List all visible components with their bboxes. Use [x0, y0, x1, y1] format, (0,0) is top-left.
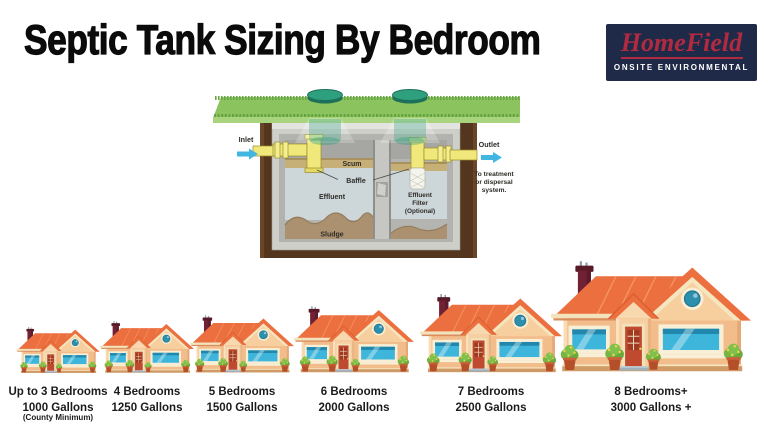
bedrooms-text: 8 Bedrooms+ [611, 386, 692, 398]
house-illustration [190, 315, 294, 374]
bedrooms-text: 4 Bedrooms [112, 386, 183, 398]
bedrooms-text: 5 Bedrooms [207, 386, 278, 398]
divider-wall [373, 140, 391, 239]
infographic-canvas: Septic Tank Sizing By Bedroom HomeField … [0, 0, 768, 432]
inlet-label: Inlet [239, 135, 254, 144]
house-label: 8 Bedrooms+ 3000 Gallons + [611, 386, 692, 414]
outlet-label: Outlet [479, 140, 500, 149]
logo-underline-rule [621, 57, 743, 59]
outlet-arrow-icon [481, 152, 502, 163]
house-illustration [16, 327, 100, 374]
gallons-text: 3000 Gallons + [611, 402, 692, 414]
house-illustration [551, 261, 751, 374]
effluent-filter [410, 168, 425, 189]
house-label: 5 Bedrooms 1500 Gallons [207, 386, 278, 414]
homefield-logo: HomeField ONSITE ENVIRONMENTAL [606, 24, 757, 81]
page-title: Septic Tank Sizing By Bedroom [24, 16, 540, 64]
logo-tagline: ONSITE ENVIRONMENTAL [606, 63, 757, 72]
gallons-text: 1250 Gallons [112, 402, 183, 414]
effluent-label: Effluent [319, 194, 346, 201]
sludge-label: Sludge [320, 232, 343, 239]
baffle-label: Baffle [346, 178, 366, 185]
house-5-bedrooms: 5 Bedrooms 1500 Gallons [190, 315, 294, 374]
bedrooms-text: 6 Bedrooms [319, 386, 390, 398]
house-label: Up to 3 Bedrooms 1000 Gallons (County Mi… [8, 386, 107, 422]
house-6-bedrooms: 6 Bedrooms 2000 Gallons [294, 306, 414, 374]
gallons-text: 2500 Gallons [456, 402, 527, 414]
house-label: 4 Bedrooms 1250 Gallons [112, 386, 183, 414]
house-illustration [294, 306, 414, 374]
county-minimum-note: (County Minimum) [8, 414, 107, 422]
house-4-bedrooms: 4 Bedrooms 1250 Gallons [100, 321, 194, 374]
outlet-note-line3: system. [482, 187, 507, 194]
bedrooms-text: 7 Bedrooms [456, 386, 527, 398]
scum-label: Scum [342, 161, 361, 168]
gallons-text: 2000 Gallons [319, 402, 390, 414]
logo-wordmark: HomeField [606, 28, 757, 57]
septic-tank-diagram: Inlet Outlet To treatment or dispersal s… [205, 85, 565, 265]
outlet-note-line2: or dispersal [475, 179, 513, 186]
filter-label-line2: Filter [412, 200, 428, 207]
house-label: 7 Bedrooms 2500 Gallons [456, 386, 527, 414]
outlet-note-line1: To treatment [474, 171, 514, 178]
house-3-bedrooms: Up to 3 Bedrooms 1000 Gallons (County Mi… [16, 327, 100, 374]
house-8-bedrooms: 8 Bedrooms+ 3000 Gallons + [551, 261, 751, 374]
filter-label-line3: (Optional) [405, 208, 435, 215]
gallons-text: 1500 Gallons [207, 402, 278, 414]
house-illustration [100, 321, 194, 374]
bedrooms-text: Up to 3 Bedrooms [8, 386, 107, 398]
house-label: 6 Bedrooms 2000 Gallons [319, 386, 390, 414]
house-7-bedrooms: 7 Bedrooms 2500 Gallons [420, 294, 562, 374]
filter-label-line1: Effluent [408, 192, 433, 199]
house-illustration [420, 294, 562, 374]
